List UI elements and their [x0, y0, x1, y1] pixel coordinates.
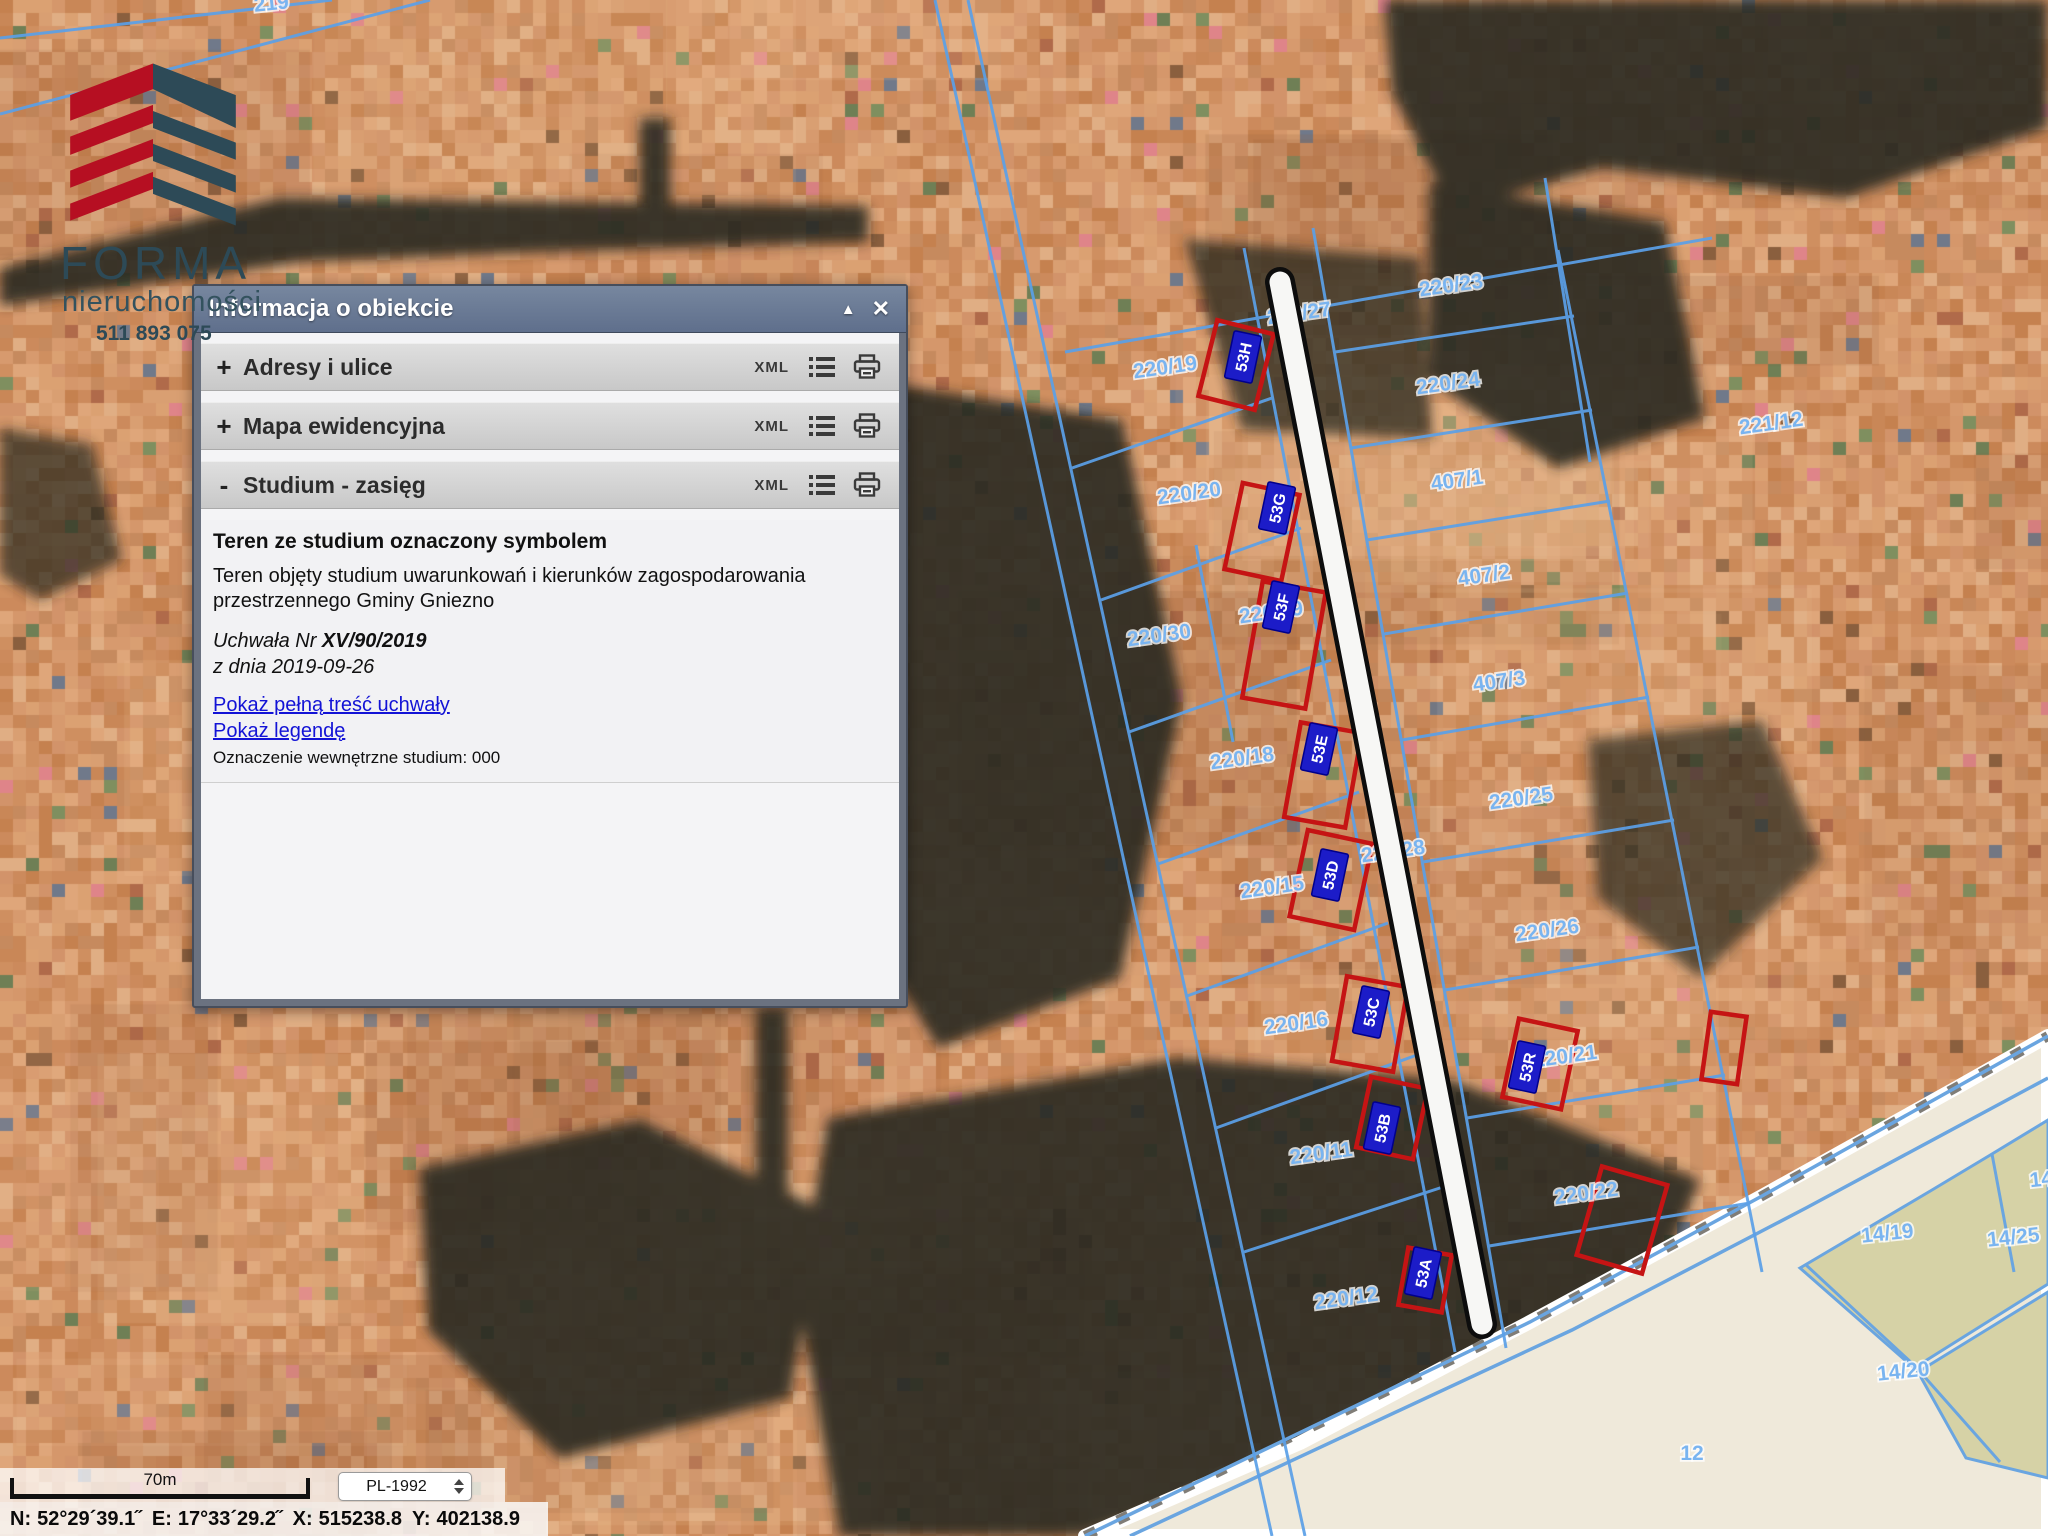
parcel-label: 407/1 — [1429, 465, 1485, 495]
panel-body: + Adresy i ulice XML + — [201, 333, 899, 999]
building-chip: 53F — [1262, 581, 1299, 634]
section-label: Adresy i ulice — [243, 354, 754, 381]
parcel-label: 407/3 — [1471, 667, 1526, 697]
resolution-prefix: Uchwała Nr — [213, 630, 322, 652]
list-icon[interactable] — [809, 415, 835, 437]
show-legend-link[interactable]: Pokaż legendę — [213, 718, 885, 744]
logo-name: FORMA — [60, 240, 318, 286]
object-info-panel: Informacja o obiekcie ▲ ✕ + Adresy i uli… — [192, 284, 908, 1008]
resolution-number: XV/90/2019 — [322, 630, 427, 652]
coord-x: X:515238.8 — [293, 1508, 402, 1531]
parcel-label: 219 — [253, 0, 290, 17]
parcel-label: 221/12 — [1738, 408, 1805, 440]
minimize-icon[interactable]: ▲ — [841, 301, 856, 318]
expand-icon[interactable]: + — [211, 413, 237, 439]
close-icon[interactable]: ✕ — [872, 296, 890, 322]
select-arrows-icon — [454, 1479, 464, 1494]
studium-heading: Teren ze studium oznaczony symbolem — [213, 530, 885, 554]
parcel-label: 220/26 — [1514, 915, 1581, 947]
parcel-label: 14 — [2029, 1167, 2048, 1192]
xml-button[interactable]: XML — [754, 418, 789, 435]
section-label: Mapa ewidencyjna — [243, 413, 754, 440]
studium-details: Teren ze studium oznaczony symbolem Tere… — [201, 520, 899, 783]
resolution-line: Uchwała Nr XV/90/2019 — [213, 628, 885, 654]
parcel-label: 220/20 — [1156, 478, 1223, 510]
section-studium-zasieg[interactable]: - Studium - zasięg XML — [201, 461, 899, 509]
print-icon[interactable] — [853, 472, 881, 498]
parcel-label: 220/18 — [1209, 743, 1276, 775]
crs-select[interactable]: PL-1992 — [338, 1472, 472, 1501]
logo-phone: 511 893 075 — [96, 323, 318, 344]
scale-bar-line — [10, 1478, 310, 1499]
parcel-label: 220/15 — [1239, 872, 1306, 904]
internal-designation: Oznaczenie wewnętrzne studium: 000 — [213, 748, 885, 768]
coord-n: N:52°29´39.1˝ — [10, 1508, 142, 1531]
building-outline — [1701, 1012, 1746, 1084]
expand-icon[interactable]: + — [211, 354, 237, 380]
studium-description: Teren objęty studium uwarunkowań i kieru… — [213, 564, 853, 614]
map-viewport[interactable]: 219220/23220/27220/19220/24221/12220/204… — [0, 0, 2048, 1536]
logo-building-icon — [58, 56, 248, 233]
coord-e: E:17°33´29.2˝ — [152, 1508, 283, 1531]
agency-logo: FORMA nieruchomości 511 893 075 — [58, 56, 318, 344]
coord-y: Y:402138.9 — [412, 1508, 520, 1531]
section-mapa-ewidencyjna[interactable]: + Mapa ewidencyjna XML — [201, 402, 899, 450]
scale-bar: 70m — [10, 1472, 310, 1502]
resolution-date: z dnia 2019-09-26 — [213, 654, 885, 680]
scale-bar-row: 70m PL-1992 — [0, 1468, 505, 1502]
list-icon[interactable] — [809, 474, 835, 496]
list-icon[interactable] — [809, 356, 835, 378]
print-icon[interactable] — [853, 413, 881, 439]
xml-button[interactable]: XML — [754, 359, 789, 376]
building-chip: 53D — [1311, 849, 1348, 902]
xml-button[interactable]: XML — [754, 477, 789, 494]
building-chip: 53C — [1352, 986, 1389, 1039]
parcel-label: 220/16 — [1263, 1008, 1330, 1040]
section-label: Studium - zasięg — [243, 472, 754, 499]
collapse-icon[interactable]: - — [211, 472, 237, 498]
show-full-resolution-link[interactable]: Pokaż pełną treść uchwały — [213, 692, 885, 718]
crs-value: PL-1992 — [339, 1478, 454, 1496]
parcel-label: 220/25 — [1488, 783, 1555, 815]
parcel-label: 12 — [1680, 1442, 1703, 1465]
logo-subtitle: nieruchomości — [62, 288, 318, 317]
section-adresy-i-ulice[interactable]: + Adresy i ulice XML — [201, 343, 899, 391]
print-icon[interactable] — [853, 354, 881, 380]
parcel-label: 220/19 — [1132, 352, 1199, 384]
coordinates-bar: N:52°29´39.1˝ E:17°33´29.2˝ X:515238.8 Y… — [0, 1502, 548, 1536]
building-chip: 53E — [1300, 723, 1337, 776]
parcel-label: 407/2 — [1456, 561, 1511, 591]
